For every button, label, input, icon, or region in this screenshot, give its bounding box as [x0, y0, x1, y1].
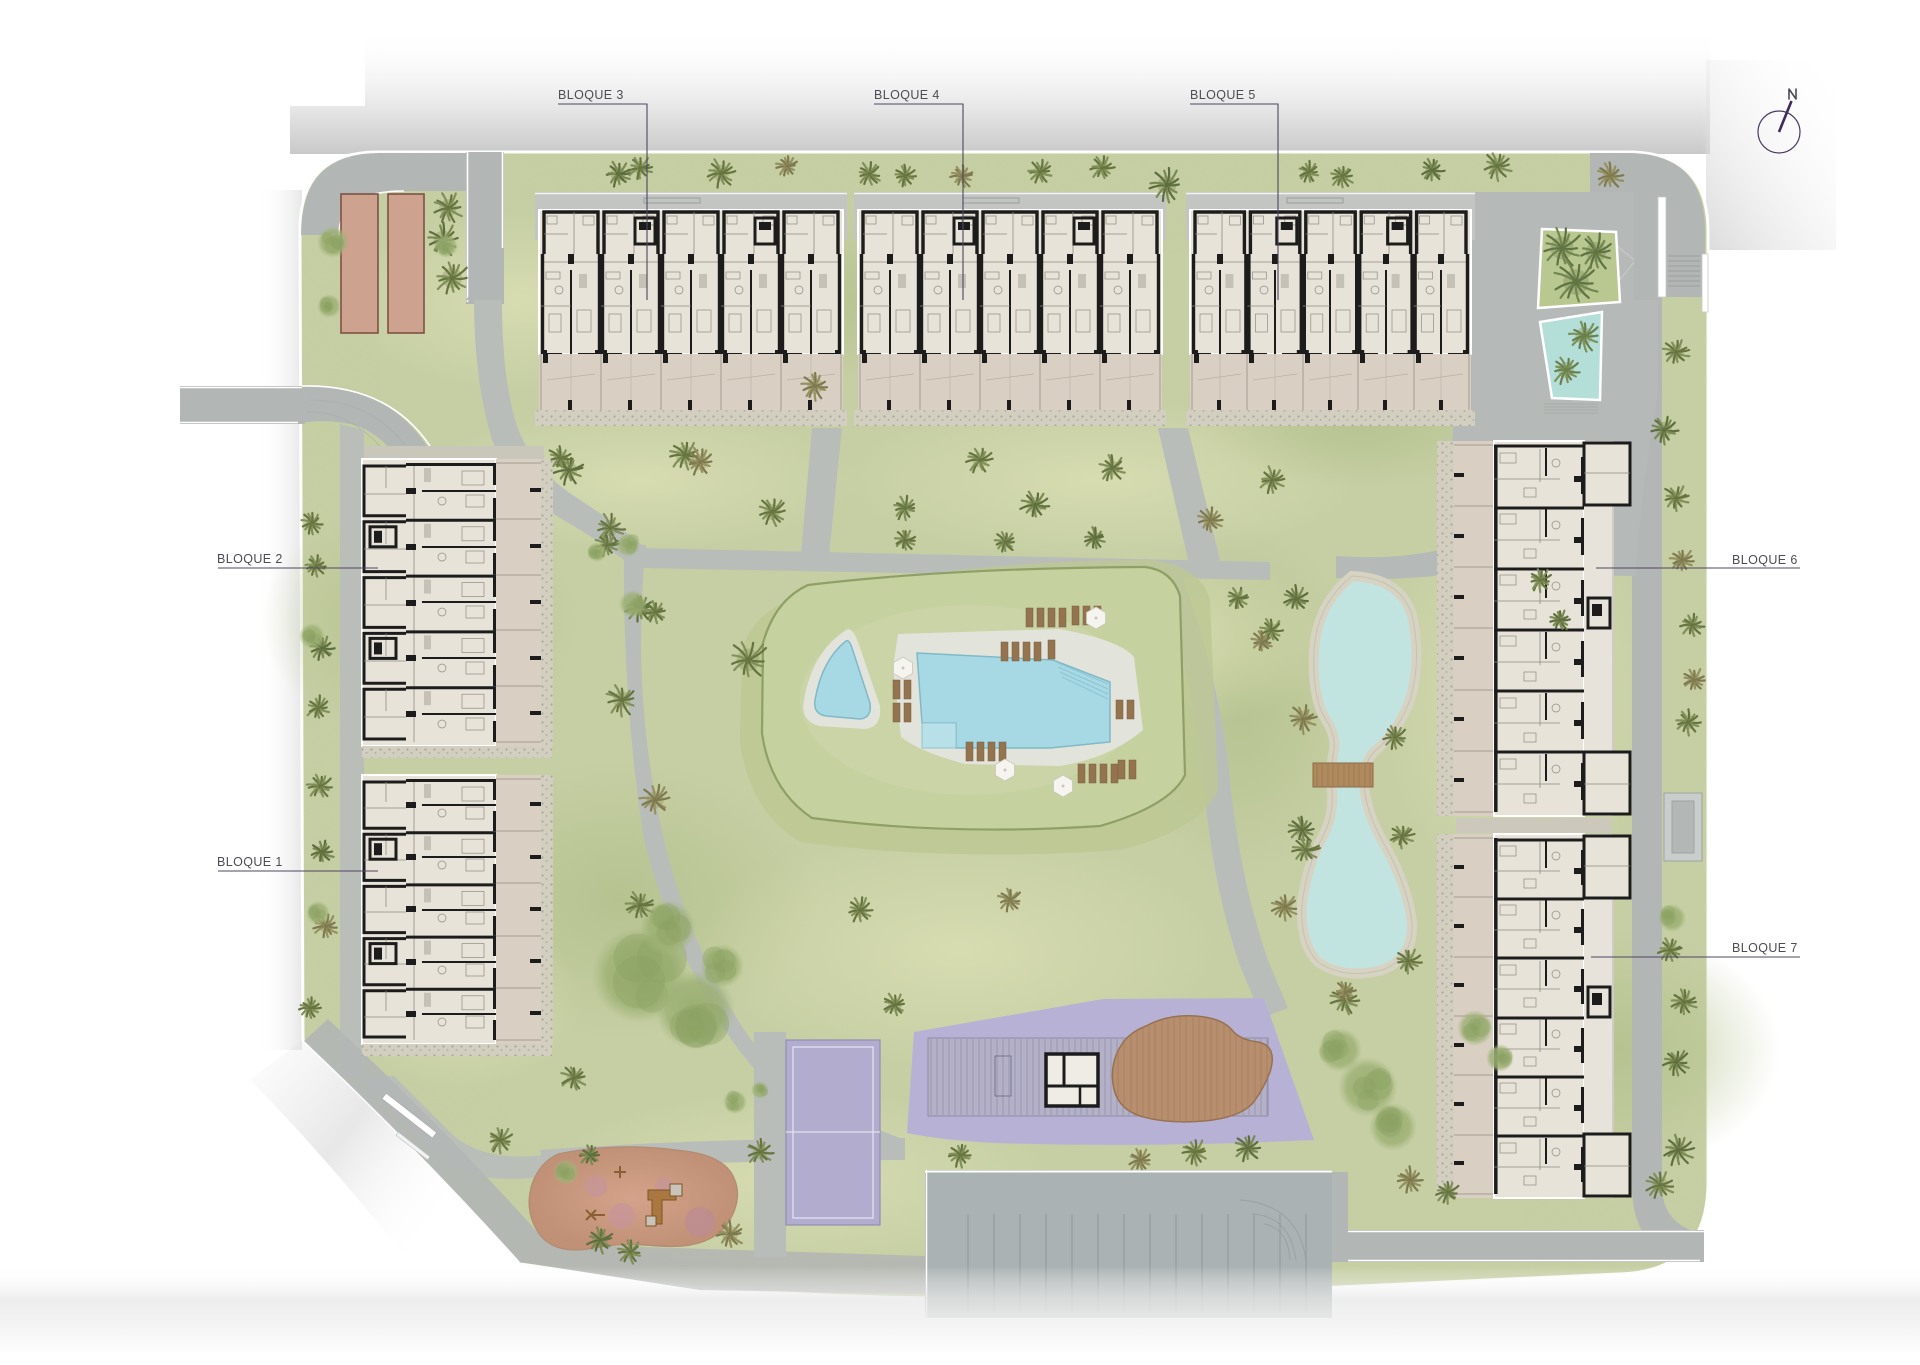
svg-text:BLOQUE 4: BLOQUE 4	[874, 88, 940, 102]
svg-text:BLOQUE 1: BLOQUE 1	[217, 855, 283, 869]
svg-text:BLOQUE 3: BLOQUE 3	[558, 88, 624, 102]
svg-text:BLOQUE 6: BLOQUE 6	[1732, 553, 1798, 567]
svg-text:BLOQUE 7: BLOQUE 7	[1732, 941, 1798, 955]
svg-text:BLOQUE 5: BLOQUE 5	[1190, 88, 1256, 102]
svg-text:BLOQUE 2: BLOQUE 2	[217, 552, 283, 566]
